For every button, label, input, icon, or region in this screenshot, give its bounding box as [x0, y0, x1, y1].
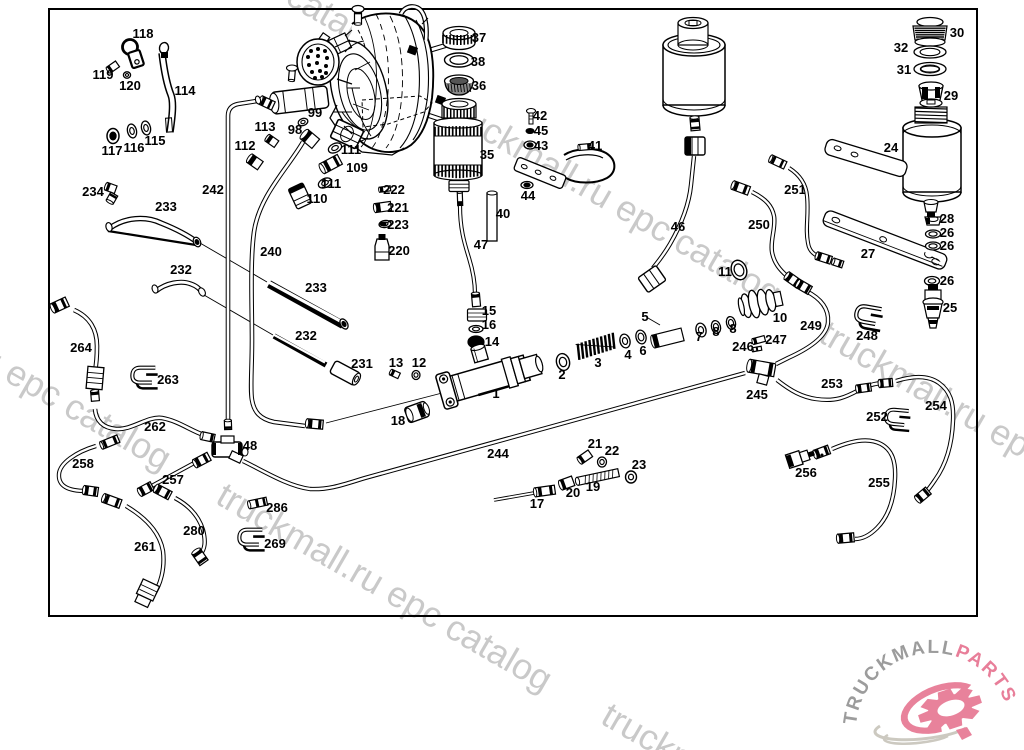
svg-text:112: 112 [235, 138, 256, 153]
svg-text:240: 240 [260, 244, 282, 259]
svg-text:233: 233 [305, 280, 327, 295]
svg-text:46: 46 [671, 219, 685, 234]
svg-text:5: 5 [641, 309, 648, 324]
svg-text:6: 6 [639, 343, 646, 358]
svg-text:37: 37 [472, 30, 486, 45]
svg-text:247: 247 [765, 332, 787, 347]
svg-text:26: 26 [940, 238, 954, 253]
svg-text:15: 15 [482, 303, 496, 318]
svg-text:280: 280 [183, 523, 205, 538]
svg-text:264: 264 [70, 340, 92, 355]
svg-text:223: 223 [387, 217, 409, 232]
svg-text:232: 232 [170, 262, 192, 277]
svg-text:30: 30 [950, 25, 964, 40]
svg-text:261: 261 [134, 539, 156, 554]
svg-text:35: 35 [480, 147, 494, 162]
svg-text:31: 31 [897, 62, 911, 77]
svg-text:16: 16 [482, 317, 496, 332]
svg-text:111: 111 [321, 176, 341, 191]
svg-text:17: 17 [530, 496, 544, 511]
svg-text:98: 98 [288, 122, 302, 137]
svg-text:7: 7 [695, 329, 702, 344]
svg-text:111: 111 [341, 142, 361, 157]
svg-text:21: 21 [588, 436, 602, 451]
svg-text:255: 255 [868, 475, 890, 490]
svg-text:269: 269 [264, 536, 286, 551]
svg-text:4: 4 [624, 347, 632, 362]
svg-text:41: 41 [588, 138, 602, 153]
svg-text:119: 119 [93, 67, 114, 82]
svg-text:22: 22 [605, 443, 619, 458]
svg-text:29: 29 [944, 88, 958, 103]
svg-text:99: 99 [308, 105, 322, 120]
svg-text:27: 27 [861, 246, 875, 261]
svg-text:244: 244 [487, 446, 509, 461]
svg-text:25: 25 [943, 300, 957, 315]
svg-text:44: 44 [521, 188, 536, 203]
svg-text:18: 18 [391, 413, 405, 428]
svg-text:249: 249 [800, 318, 822, 333]
svg-text:28: 28 [940, 211, 954, 226]
svg-text:120: 120 [119, 78, 141, 93]
svg-text:24: 24 [884, 140, 899, 155]
svg-text:11: 11 [718, 264, 732, 279]
svg-text:234: 234 [82, 184, 104, 199]
svg-text:118: 118 [133, 26, 154, 41]
svg-text:8: 8 [729, 321, 736, 336]
svg-text:256: 256 [795, 465, 817, 480]
svg-text:110: 110 [307, 191, 328, 206]
svg-text:38: 38 [471, 54, 485, 69]
svg-text:26: 26 [940, 273, 954, 288]
svg-text:253: 253 [821, 376, 843, 391]
svg-text:20: 20 [566, 485, 580, 500]
svg-text:32: 32 [894, 40, 908, 55]
svg-text:113: 113 [255, 119, 276, 134]
svg-text:14: 14 [485, 334, 500, 349]
svg-text:12: 12 [412, 355, 426, 370]
svg-text:1: 1 [492, 386, 499, 401]
svg-text:115: 115 [145, 133, 166, 148]
svg-text:286: 286 [266, 500, 288, 515]
svg-text:40: 40 [496, 206, 510, 221]
svg-text:48: 48 [243, 438, 257, 453]
svg-text:42: 42 [533, 108, 547, 123]
svg-text:13: 13 [389, 355, 403, 370]
svg-text:114: 114 [175, 83, 197, 98]
svg-text:263: 263 [157, 372, 179, 387]
svg-text:251: 251 [784, 182, 806, 197]
svg-text:246: 246 [732, 339, 754, 354]
svg-text:116: 116 [124, 140, 145, 155]
svg-text:109: 109 [346, 160, 368, 175]
svg-text:47: 47 [474, 237, 488, 252]
svg-text:232: 232 [295, 328, 317, 343]
svg-text:245: 245 [746, 387, 768, 402]
svg-text:248: 248 [856, 328, 878, 343]
svg-text:254: 254 [925, 398, 947, 413]
svg-text:257: 257 [162, 472, 184, 487]
svg-text:45: 45 [534, 123, 548, 138]
svg-text:23: 23 [632, 457, 646, 472]
svg-text:2: 2 [558, 367, 565, 382]
svg-text:10: 10 [773, 310, 787, 325]
svg-text:19: 19 [586, 479, 600, 494]
svg-text:258: 258 [72, 456, 94, 471]
svg-text:262: 262 [144, 419, 166, 434]
svg-text:231: 231 [351, 356, 373, 371]
svg-text:36: 36 [472, 78, 486, 93]
svg-text:242: 242 [202, 182, 224, 197]
svg-text:252: 252 [866, 409, 888, 424]
svg-text:220: 220 [388, 243, 410, 258]
svg-text:250: 250 [748, 217, 770, 232]
svg-text:221: 221 [387, 200, 409, 215]
svg-text:222: 222 [383, 182, 405, 197]
svg-text:117: 117 [102, 143, 123, 158]
svg-text:233: 233 [155, 199, 177, 214]
svg-text:3: 3 [594, 355, 601, 370]
svg-text:43: 43 [534, 138, 548, 153]
svg-text:8: 8 [712, 324, 719, 339]
